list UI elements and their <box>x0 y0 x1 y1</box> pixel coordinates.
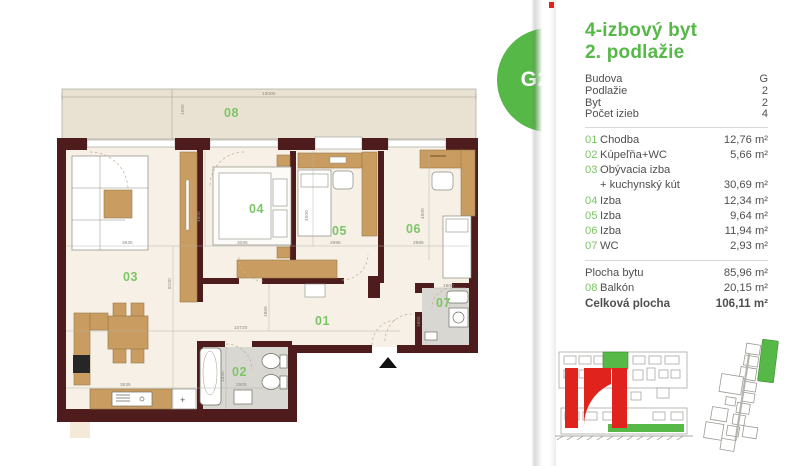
info-value: 4 <box>762 109 768 121</box>
summary-value: 85,96 m² <box>724 266 768 281</box>
room-name: Izba <box>600 224 725 239</box>
apartment-type: 4-izbový byt <box>585 20 768 42</box>
building-section-thumbnail <box>553 344 695 452</box>
summary-label: Plocha bytu <box>585 266 724 281</box>
room-number: 05 <box>585 209 600 224</box>
total-value: 106,11 m² <box>716 296 768 311</box>
info-row: Podlažie 2 <box>585 86 768 98</box>
room-number: 03 <box>585 163 600 178</box>
summary-value: 20,15 m² <box>724 281 768 296</box>
apartment-floor-line: 2. podlažie <box>585 42 768 64</box>
room-area-row: 04 Izba 12,34 m² <box>585 194 768 209</box>
room-area: 9,64 m² <box>730 209 768 224</box>
room-area: 11,94 m² <box>725 224 768 239</box>
svg-text:3835: 3835 <box>122 240 133 246</box>
room-label-06: 06 <box>406 222 421 236</box>
room-number: 08 <box>585 281 600 296</box>
svg-text:2905: 2905 <box>236 382 247 388</box>
room-area: 2,93 m² <box>730 239 768 254</box>
svg-text:10720: 10720 <box>234 325 248 331</box>
info-value: 2 <box>762 86 768 98</box>
brochure-page: 13000 1950 08 <box>0 0 800 466</box>
info-label: Počet izieb <box>585 109 639 121</box>
room-area-row: 02 Kúpeľňa+WC 5,66 m² <box>585 148 768 163</box>
svg-text:2985: 2985 <box>413 240 424 246</box>
highlighted-unit <box>603 352 628 369</box>
apartment-title: 4-izbový byt 2. podlažie <box>585 20 768 64</box>
svg-text:8100: 8100 <box>167 278 173 289</box>
room-number: 06 <box>585 224 600 239</box>
svg-text:1800: 1800 <box>443 283 454 289</box>
dimension-label: 13000 <box>262 91 276 97</box>
room-label-04: 04 <box>249 202 264 216</box>
summary-table: Plocha bytu 85,96 m² 08 Balkón 20,15 m² … <box>585 266 768 311</box>
room-area-row: + kuchynský kút 30,69 m² <box>585 178 768 193</box>
svg-text:1865: 1865 <box>416 316 422 327</box>
room-label-02: 02 <box>232 365 247 379</box>
room-area: 12,76 m² <box>724 133 768 148</box>
total-label: Celková plocha <box>585 296 716 311</box>
room-number: 01 <box>585 133 600 148</box>
summary-label: Balkón <box>600 281 724 296</box>
room-area-row: 03 Obývacia izba <box>585 163 768 178</box>
svg-text:3085: 3085 <box>237 240 248 246</box>
divider <box>585 260 768 261</box>
svg-text:+: + <box>180 395 185 405</box>
room-area-row: 01 Chodba 12,76 m² <box>585 133 768 148</box>
info-label: Podlažie <box>585 86 627 98</box>
room-area: 30,69 m² <box>724 178 768 193</box>
svg-text:1835: 1835 <box>220 371 226 382</box>
site-plan-thumbnail <box>698 330 798 466</box>
svg-text:2985: 2985 <box>330 240 341 246</box>
room-name: Chodba <box>600 133 724 148</box>
room-area: 12,34 m² <box>724 194 768 209</box>
room-number: 07 <box>585 239 600 254</box>
room-label-05: 05 <box>332 224 347 238</box>
svg-text:1865: 1865 <box>263 306 269 317</box>
room-area-row: 07 WC 2,93 m² <box>585 239 768 254</box>
room-number <box>585 178 600 193</box>
entrance-arrow-icon <box>379 357 397 368</box>
room-area-row: 05 Izba 9,64 m² <box>585 209 768 224</box>
svg-text:3835: 3835 <box>120 382 131 388</box>
shadow <box>70 422 90 438</box>
room-name: + kuchynský kút <box>600 178 724 193</box>
svg-text:4500: 4500 <box>420 208 426 219</box>
room-name: Izba <box>600 209 730 224</box>
room-label-07: 07 <box>436 296 451 310</box>
info-table: Budova G Podlažie 2 Byt 2 Počet izieb 4 <box>585 74 768 121</box>
room-area-table: 01 Chodba 12,76 m² 02 Kúpeľňa+WC 5,66 m²… <box>585 133 768 254</box>
room-label-03: 03 <box>123 270 138 284</box>
room-label-balcony: 08 <box>224 106 239 120</box>
room-number: 04 <box>585 194 600 209</box>
room-area: 5,66 m² <box>730 148 768 163</box>
dimension-label: 1950 <box>180 104 186 115</box>
svg-text:4500: 4500 <box>304 210 310 221</box>
summary-total-row: Celková plocha 106,11 m² <box>585 296 768 311</box>
room-name: Obývacia izba <box>600 163 768 178</box>
summary-row: Plocha bytu 85,96 m² <box>585 266 768 281</box>
info-row: Počet izieb 4 <box>585 109 768 121</box>
balcony: 13000 1950 08 <box>62 89 476 139</box>
svg-text:4600: 4600 <box>196 211 202 222</box>
logo-fragment <box>549 2 554 8</box>
room-name: Izba <box>600 194 724 209</box>
room-number: 02 <box>585 148 600 163</box>
room-label-01: 01 <box>315 314 330 328</box>
room-name: WC <box>600 239 730 254</box>
summary-row: 08 Balkón 20,15 m² <box>585 281 768 296</box>
room-area-row: 06 Izba 11,94 m² <box>585 224 768 239</box>
divider <box>585 127 768 128</box>
floor-plan: 13000 1950 08 <box>0 0 545 466</box>
room-name: Kúpeľňa+WC <box>600 148 730 163</box>
